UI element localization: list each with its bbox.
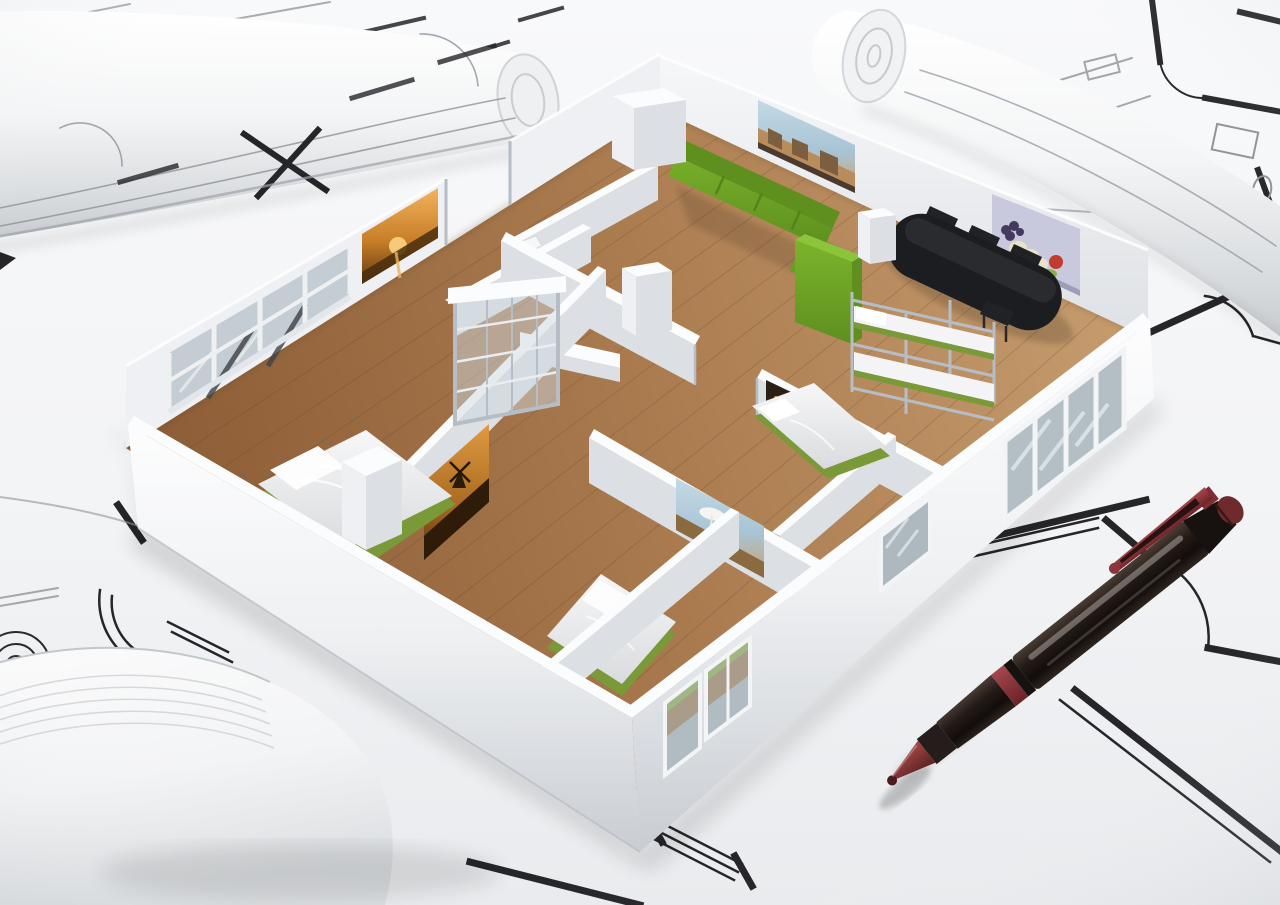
scene-canvas — [0, 0, 1280, 905]
column-entry — [612, 88, 686, 170]
column-living — [858, 208, 896, 264]
rendered-scene: Photorealistic 3D cutaway model of a fur… — [0, 0, 1280, 905]
column-master — [342, 446, 402, 550]
glass-closet — [448, 276, 566, 424]
column-hall — [622, 262, 672, 336]
